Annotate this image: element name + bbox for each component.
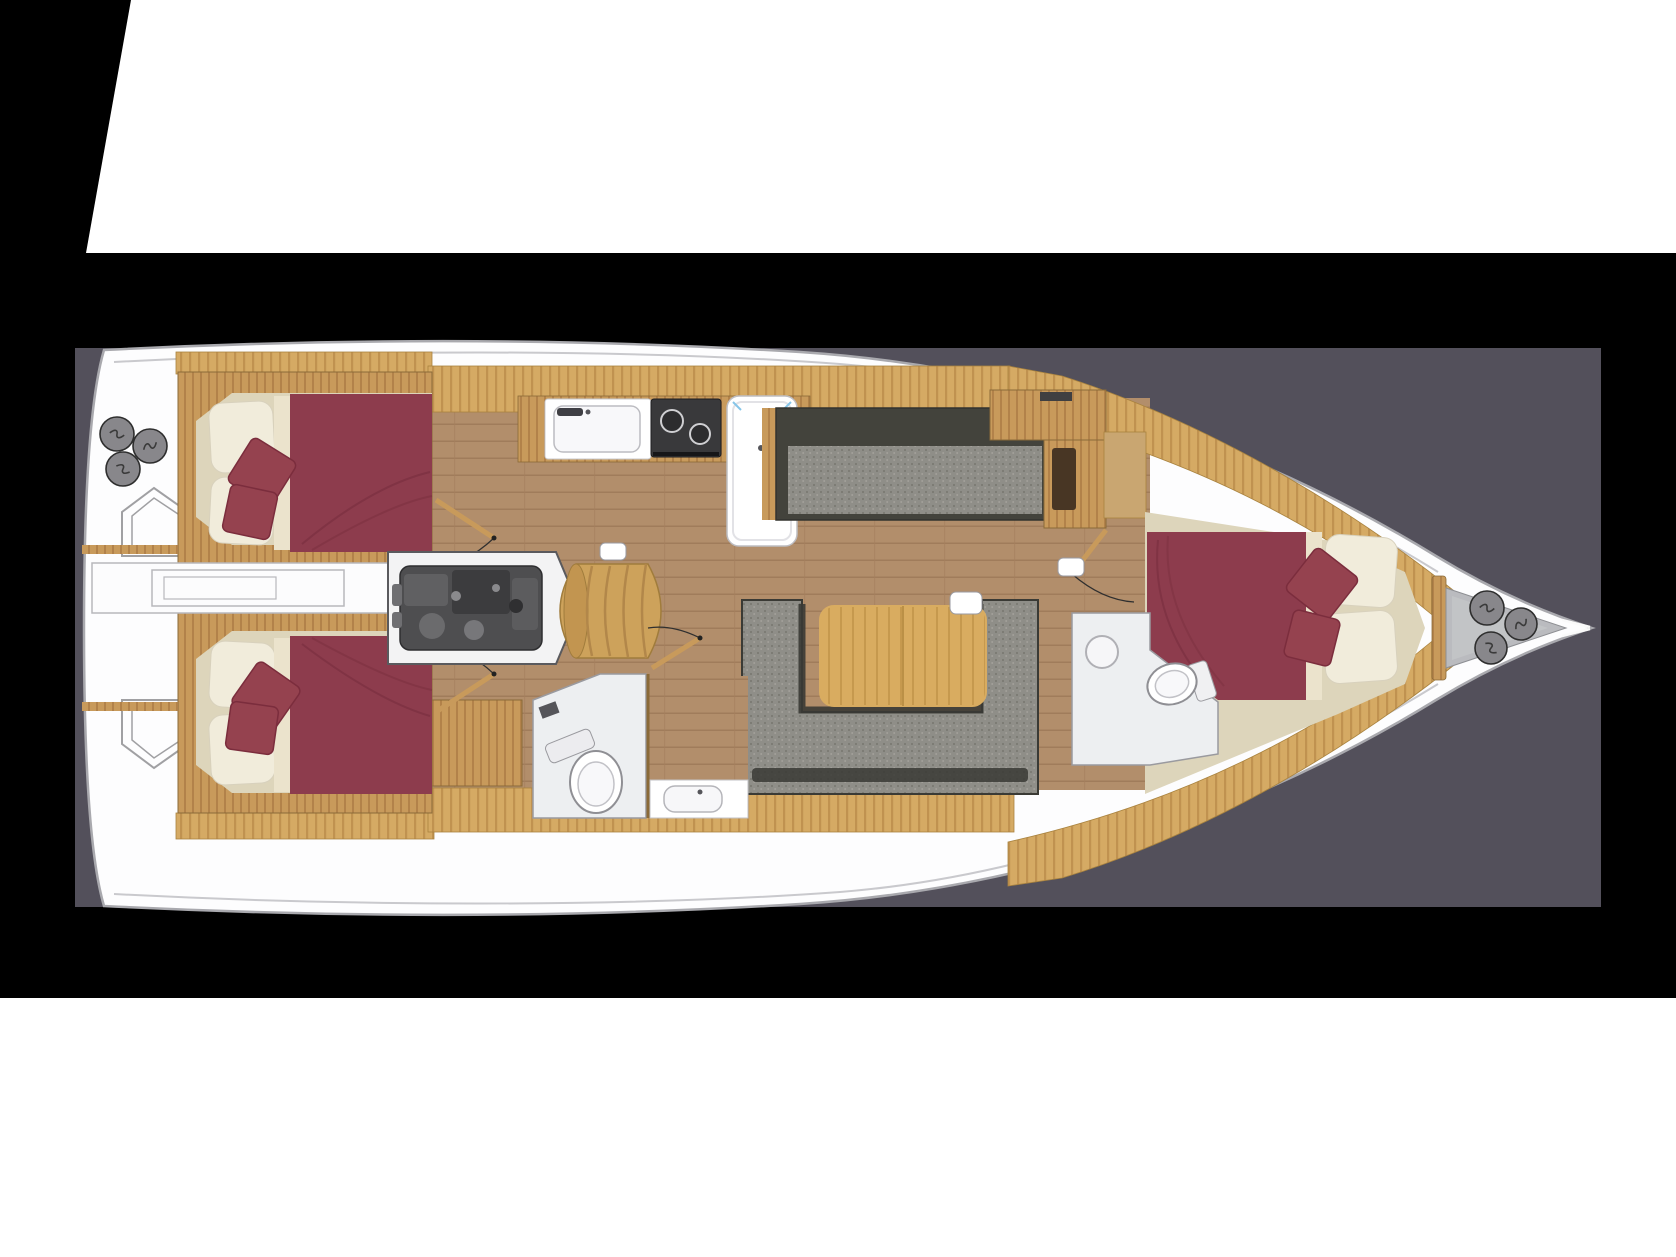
galley-faucet — [557, 408, 583, 416]
deck-fitting-circle — [1475, 632, 1507, 664]
lower-cabinet — [432, 700, 522, 786]
stove-burner — [661, 410, 683, 432]
steps-drum-cap — [564, 564, 588, 658]
door-handle — [698, 636, 703, 641]
floor-plan-drawing — [0, 0, 1676, 1257]
basin-faucet — [698, 790, 703, 795]
deck-fitting-circle — [1470, 591, 1504, 625]
settee-cushion — [788, 446, 1042, 514]
locker-inset — [1052, 448, 1076, 510]
door-handle — [492, 672, 497, 677]
deck-fitting-circle — [1505, 608, 1537, 640]
drain-dot — [586, 410, 591, 415]
entry-step — [1104, 432, 1146, 518]
hatch-handle — [600, 543, 626, 560]
floor-plan-canvas — [0, 0, 1676, 1257]
throw-pillow — [1283, 609, 1341, 667]
vent-slot — [1040, 392, 1072, 401]
table-fitting — [950, 592, 982, 614]
toilet-seat — [578, 762, 614, 806]
salon-dinette — [742, 592, 1038, 794]
deck-fitting-circle — [100, 417, 134, 451]
bow-bulkhead-trim — [1432, 576, 1446, 680]
washbasin — [664, 786, 722, 812]
vanity-floor — [650, 676, 748, 780]
settee-end-table — [762, 408, 776, 520]
engine-block — [392, 566, 542, 650]
throw-pillow — [222, 484, 279, 541]
deck-fitting-circle — [106, 452, 140, 486]
stern-trim-strip — [82, 545, 178, 554]
hatch-handle — [1058, 558, 1084, 576]
fwd-washbasin — [1086, 636, 1118, 668]
door-handle — [492, 536, 497, 541]
side-deck-teak-aft-bottom — [176, 813, 434, 839]
deck-fitting-circle — [133, 429, 167, 463]
stove-handle-bar — [653, 452, 719, 456]
throw-pillow — [225, 701, 279, 755]
galley-stove — [651, 399, 721, 457]
double-berth — [290, 394, 432, 552]
sofa-back-band — [752, 768, 1028, 782]
stern-trim-strip — [82, 702, 178, 711]
stove-burner — [690, 424, 710, 444]
side-deck-teak-aft-top — [176, 352, 432, 374]
